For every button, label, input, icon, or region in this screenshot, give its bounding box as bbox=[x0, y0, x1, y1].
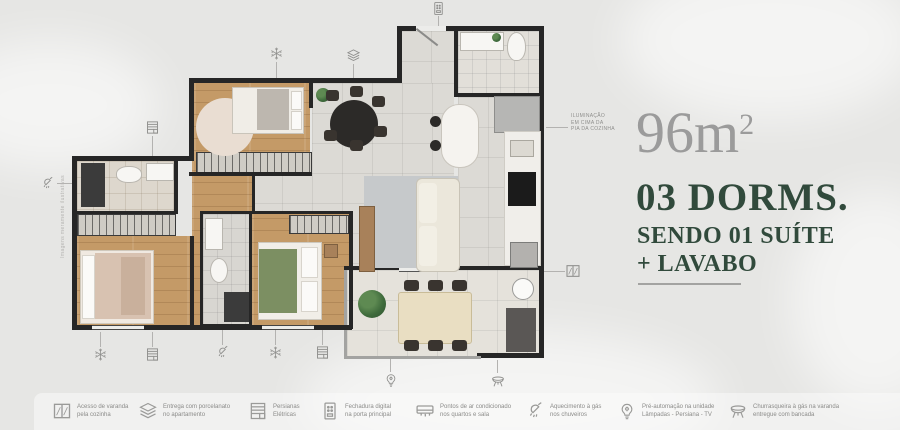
legend-label: Fechadura digital bbox=[345, 404, 391, 410]
wall bbox=[189, 78, 194, 161]
legend-label: Pré-automação na unidade bbox=[642, 404, 714, 410]
layers-icon bbox=[346, 48, 361, 63]
legend-label: Lâmpadas - Persiana - TV bbox=[642, 412, 712, 418]
kitchen-island bbox=[441, 104, 479, 168]
grill-icon bbox=[728, 401, 748, 421]
legend-label: Entrega com porcelanato bbox=[163, 404, 230, 410]
legend-label: Acesso de varanda bbox=[77, 404, 128, 410]
callout-line bbox=[276, 62, 277, 78]
wall bbox=[174, 156, 178, 214]
sofa bbox=[416, 178, 460, 272]
legend-item: Acesso de varandapela cozinha bbox=[52, 401, 128, 421]
grill-icon bbox=[490, 373, 506, 389]
legend-label: nos quartos e sala bbox=[440, 412, 489, 418]
snowflake-icon bbox=[268, 345, 283, 360]
chair bbox=[350, 140, 363, 151]
blinds-icon bbox=[315, 345, 330, 360]
toilet bbox=[116, 166, 142, 183]
chair bbox=[350, 86, 363, 97]
subtitle-line2: + LAVABO bbox=[637, 252, 757, 277]
callout-line bbox=[546, 127, 568, 128]
kitchen-sink bbox=[510, 140, 534, 157]
nightstand bbox=[324, 244, 338, 258]
automation-bulb-icon bbox=[383, 372, 399, 388]
air-conditioner-icon bbox=[415, 401, 435, 421]
bed-double bbox=[80, 250, 154, 324]
callout-line bbox=[497, 360, 498, 373]
headline-underline bbox=[638, 283, 741, 285]
bedroom3-wardrobe bbox=[289, 215, 349, 234]
shower-box bbox=[224, 292, 249, 322]
wall bbox=[72, 156, 77, 330]
background-swirl bbox=[0, 40, 160, 170]
wall bbox=[190, 236, 194, 327]
wall bbox=[252, 173, 255, 214]
tv-rack bbox=[359, 206, 375, 272]
legend-label: Persianas bbox=[273, 404, 300, 410]
wall bbox=[72, 211, 176, 214]
wall bbox=[309, 78, 313, 108]
legend-label: na porta principal bbox=[345, 412, 391, 418]
legend-item: Churrasqueira à gás na varandaentregue c… bbox=[728, 401, 839, 421]
shower-icon bbox=[525, 401, 545, 421]
legend-label: Churrasqueira à gás na varanda bbox=[753, 404, 839, 410]
window-opening bbox=[92, 325, 144, 330]
chair bbox=[428, 280, 443, 291]
callout-line bbox=[222, 330, 223, 345]
layers-icon bbox=[138, 401, 158, 421]
chair bbox=[404, 340, 419, 351]
legend-label: nos chuveiros bbox=[550, 412, 587, 418]
window-icon bbox=[52, 401, 72, 421]
legend-item: PersianasElétricas bbox=[248, 401, 300, 421]
toilet bbox=[210, 258, 228, 283]
callout-line bbox=[152, 136, 153, 156]
pillow bbox=[291, 91, 302, 110]
chair bbox=[452, 340, 467, 351]
wall bbox=[349, 211, 353, 329]
digital-lock-icon bbox=[431, 1, 446, 16]
wall bbox=[477, 353, 544, 358]
floorplan-marketing-image: ILUMINAÇÃO EM CIMA DA PIA DA COZINHA Ima… bbox=[0, 0, 900, 430]
chair bbox=[428, 340, 443, 351]
automation-bulb-icon bbox=[617, 401, 637, 421]
laundry-sink bbox=[512, 278, 534, 300]
callout-line bbox=[390, 359, 391, 372]
plant-large bbox=[358, 290, 386, 318]
wall bbox=[454, 26, 458, 93]
area-value: 96m bbox=[636, 100, 739, 165]
legend-label: entregue com bancada bbox=[753, 412, 814, 418]
blinds-icon bbox=[248, 401, 268, 421]
area-superscript: 2 bbox=[739, 108, 754, 141]
subtitle-line1: SENDO 01 SUÍTE bbox=[637, 224, 835, 249]
fridge bbox=[494, 96, 540, 133]
window-opening bbox=[262, 325, 314, 330]
chair bbox=[326, 90, 339, 101]
callout-line bbox=[544, 271, 565, 272]
chair bbox=[374, 126, 387, 137]
suite-wardrobe bbox=[77, 214, 176, 236]
pillow bbox=[301, 247, 318, 278]
pillow bbox=[301, 281, 318, 312]
bathroom-vanity bbox=[205, 218, 223, 250]
callout-line bbox=[100, 332, 101, 347]
callout-line bbox=[322, 330, 323, 345]
wall bbox=[252, 211, 352, 214]
callout-line bbox=[438, 16, 439, 26]
legend-item: Pré-automação na unidadeLâmpadas - Persi… bbox=[617, 401, 714, 421]
toilet bbox=[507, 32, 526, 61]
balcony-parapet bbox=[344, 268, 347, 359]
legend-item: Fechadura digitalna porta principal bbox=[320, 401, 391, 421]
stool bbox=[430, 116, 441, 127]
blinds-icon bbox=[145, 120, 160, 135]
legend-item: Pontos de ar condicionadonos quartos e s… bbox=[415, 401, 511, 421]
shower-icon bbox=[40, 176, 55, 191]
balcony-dining-table bbox=[398, 292, 472, 344]
cooktop-oven bbox=[508, 172, 536, 206]
stool bbox=[430, 140, 441, 151]
legend-label: Aquecimento à gás bbox=[550, 404, 601, 410]
callout-line bbox=[152, 332, 153, 347]
window-icon bbox=[565, 263, 581, 279]
sofa-cushion bbox=[419, 226, 437, 266]
sofa-cushion bbox=[419, 183, 437, 223]
shower-box bbox=[81, 163, 105, 207]
bed-double bbox=[258, 242, 322, 320]
legend-item: Entrega com porcelanatono apartamento bbox=[138, 401, 230, 421]
wall bbox=[189, 172, 312, 176]
dorms-title: 03 DORMS. bbox=[636, 178, 849, 218]
bedroom1-closet bbox=[196, 152, 312, 173]
pillow bbox=[82, 255, 95, 319]
area-label: 96m2 bbox=[636, 96, 754, 162]
shower-icon bbox=[215, 345, 230, 360]
corridor-floor bbox=[252, 173, 349, 214]
callout-line bbox=[353, 64, 354, 78]
washer-cabinet bbox=[506, 308, 536, 352]
legend-label: pela cozinha bbox=[77, 412, 111, 418]
chair bbox=[404, 280, 419, 291]
legend-label: no apartamento bbox=[163, 412, 205, 418]
callout-line bbox=[275, 330, 276, 345]
chair bbox=[452, 280, 467, 291]
bed-blanket-green bbox=[259, 249, 297, 313]
bed-blanket-fold bbox=[121, 257, 145, 315]
snowflake-icon bbox=[269, 46, 284, 61]
snowflake-icon bbox=[93, 347, 108, 362]
wall bbox=[189, 78, 401, 83]
digital-lock-icon bbox=[320, 401, 340, 421]
legend-label: Elétricas bbox=[273, 412, 296, 418]
legend-label: Pontos de ar condicionado bbox=[440, 404, 511, 410]
bed-blanket bbox=[257, 89, 289, 130]
chair bbox=[324, 130, 337, 141]
bbq-grill bbox=[510, 242, 538, 268]
chair bbox=[372, 96, 385, 107]
wall bbox=[397, 26, 402, 83]
bed-single bbox=[232, 87, 304, 134]
bathroom-vanity bbox=[146, 163, 174, 181]
balcony-parapet bbox=[346, 356, 481, 359]
pillow bbox=[291, 111, 302, 130]
plant bbox=[492, 33, 501, 42]
disclaimer-text: Imagens meramente ilustrativas bbox=[60, 175, 66, 258]
legend-item: Aquecimento à gásnos chuveiros bbox=[525, 401, 601, 421]
blinds-icon bbox=[145, 347, 160, 362]
